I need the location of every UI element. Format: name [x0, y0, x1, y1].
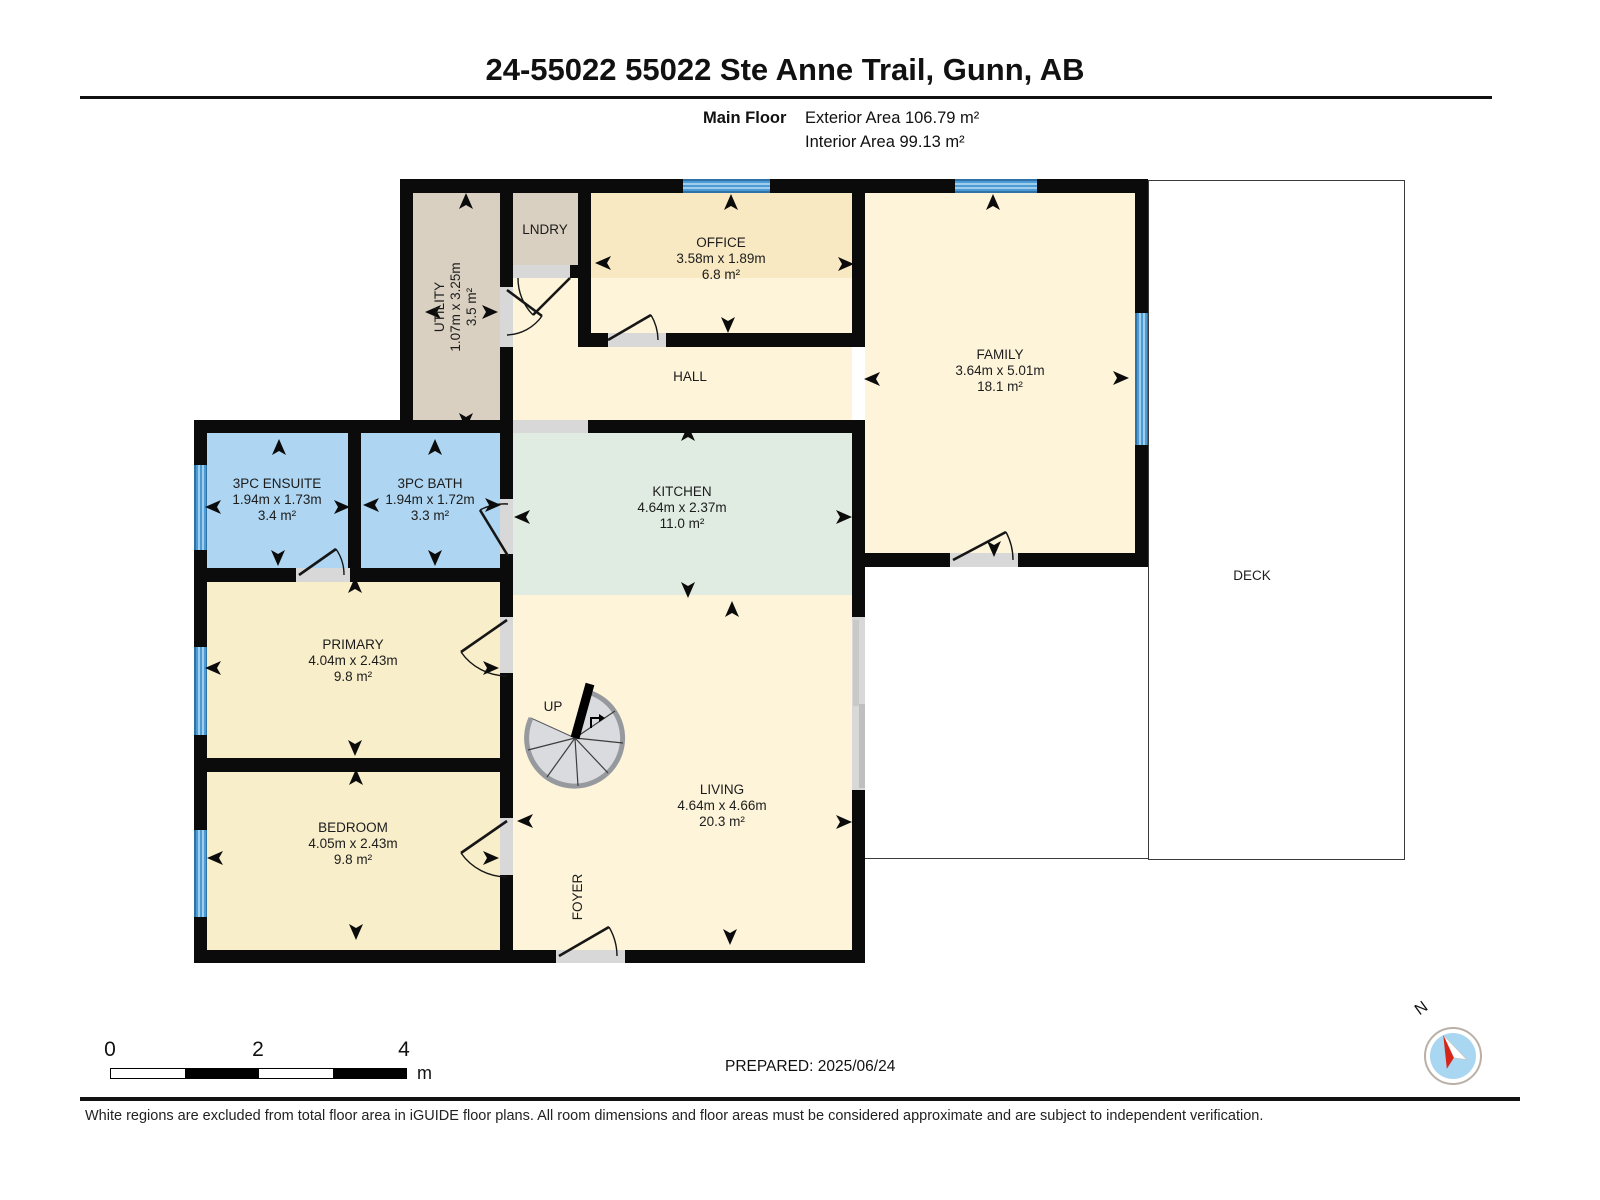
direction-arrow-icon: [681, 425, 695, 441]
prepared-date-label: PREPARED: 2025/06/24: [725, 1058, 895, 1076]
room-label-ensuite: 3PC ENSUITE1.94m x 1.73m3.4 m²: [232, 476, 321, 524]
interior-area-label: Interior Area 99.13 m²: [805, 133, 965, 152]
direction-arrow-icon: [207, 851, 223, 865]
room-label-primary: PRIMARY4.04m x 2.43m9.8 m²: [308, 637, 397, 685]
header-divider: [80, 96, 1492, 99]
room-label-utility: UTILITY1.07m x 3.25m3.5 m²: [432, 262, 480, 351]
direction-arrow-icon: [272, 439, 286, 455]
direction-arrow-icon: [725, 601, 739, 617]
room-label-laundry: LNDRY: [522, 222, 568, 238]
page-title: 24-55022 55022 Ste Anne Trail, Gunn, AB: [80, 52, 1490, 88]
footer-divider: [80, 1097, 1520, 1101]
floorplan-page: 24-55022 55022 Ste Anne Trail, Gunn, AB …: [0, 0, 1600, 1200]
exterior-area-label: Exterior Area 106.79 m²: [805, 109, 979, 128]
room-label-office: OFFICE3.58m x 1.89m6.8 m²: [676, 235, 765, 283]
direction-arrow-icon: [363, 498, 379, 512]
room-label-living: LIVING4.64m x 4.66m20.3 m²: [677, 782, 766, 830]
direction-arrow-icon: [514, 510, 530, 524]
direction-arrow-icon: [205, 661, 221, 675]
direction-arrow-icon: [721, 317, 735, 333]
direction-arrow-icon: [987, 541, 1001, 557]
direction-arrow-icon: [595, 256, 611, 270]
direction-arrow-icon: [483, 661, 499, 675]
direction-arrow-icon: [517, 814, 533, 828]
direction-arrow-icon: [681, 582, 695, 598]
direction-arrow-icon: [836, 510, 852, 524]
room-label-bath: 3PC BATH1.94m x 1.72m3.3 m²: [385, 476, 474, 524]
direction-arrow-icon: [349, 924, 363, 940]
direction-arrow-icon: [271, 550, 285, 566]
scale-bar: [110, 1068, 407, 1079]
plan-overlay-graphics: [0, 0, 1600, 1200]
direction-arrow-icon: [334, 500, 350, 514]
scale-tick-4: 4: [384, 1038, 424, 1062]
room-label-hall: HALL: [673, 369, 707, 385]
direction-arrow-icon: [723, 929, 737, 945]
direction-arrow-icon: [482, 305, 498, 319]
room-label-kitchen: KITCHEN4.64m x 2.37m11.0 m²: [637, 484, 726, 532]
room-label-foyer: FOYER: [570, 874, 586, 921]
direction-arrow-icon: [724, 194, 738, 210]
direction-arrow-icon: [1113, 371, 1129, 385]
room-label-bedroom: BEDROOM4.05m x 2.43m9.8 m²: [308, 820, 397, 868]
direction-arrow-icon: [485, 498, 501, 512]
scale-unit-label: m: [417, 1063, 432, 1084]
direction-arrow-icon: [349, 769, 363, 785]
direction-arrow-icon: [428, 550, 442, 566]
direction-arrow-icon: [864, 372, 880, 386]
stairs-up-label: UP: [544, 699, 563, 715]
spiral-staircase: [527, 684, 623, 786]
room-label-family: FAMILY3.64m x 5.01m18.1 m²: [955, 347, 1044, 395]
scale-tick-2: 2: [238, 1038, 278, 1062]
direction-arrow-icon: [428, 439, 442, 455]
compass-icon: [1425, 1028, 1481, 1084]
direction-arrow-icon: [348, 577, 362, 593]
direction-arrow-icon: [838, 257, 854, 271]
footer-disclaimer: White regions are excluded from total fl…: [85, 1108, 1515, 1124]
room-label-deck: DECK: [1233, 568, 1271, 584]
direction-arrow-icon: [986, 194, 1000, 210]
direction-arrow-icon: [205, 500, 221, 514]
floor-label: Main Floor: [703, 109, 786, 128]
direction-arrow-icon: [483, 851, 499, 865]
door-swings: [299, 278, 1013, 956]
direction-arrow-icon: [459, 193, 473, 209]
direction-arrow-icon: [348, 740, 362, 756]
direction-arrow-icon: [459, 413, 473, 429]
direction-arrow-icon: [836, 815, 852, 829]
scale-tick-0: 0: [90, 1038, 130, 1062]
